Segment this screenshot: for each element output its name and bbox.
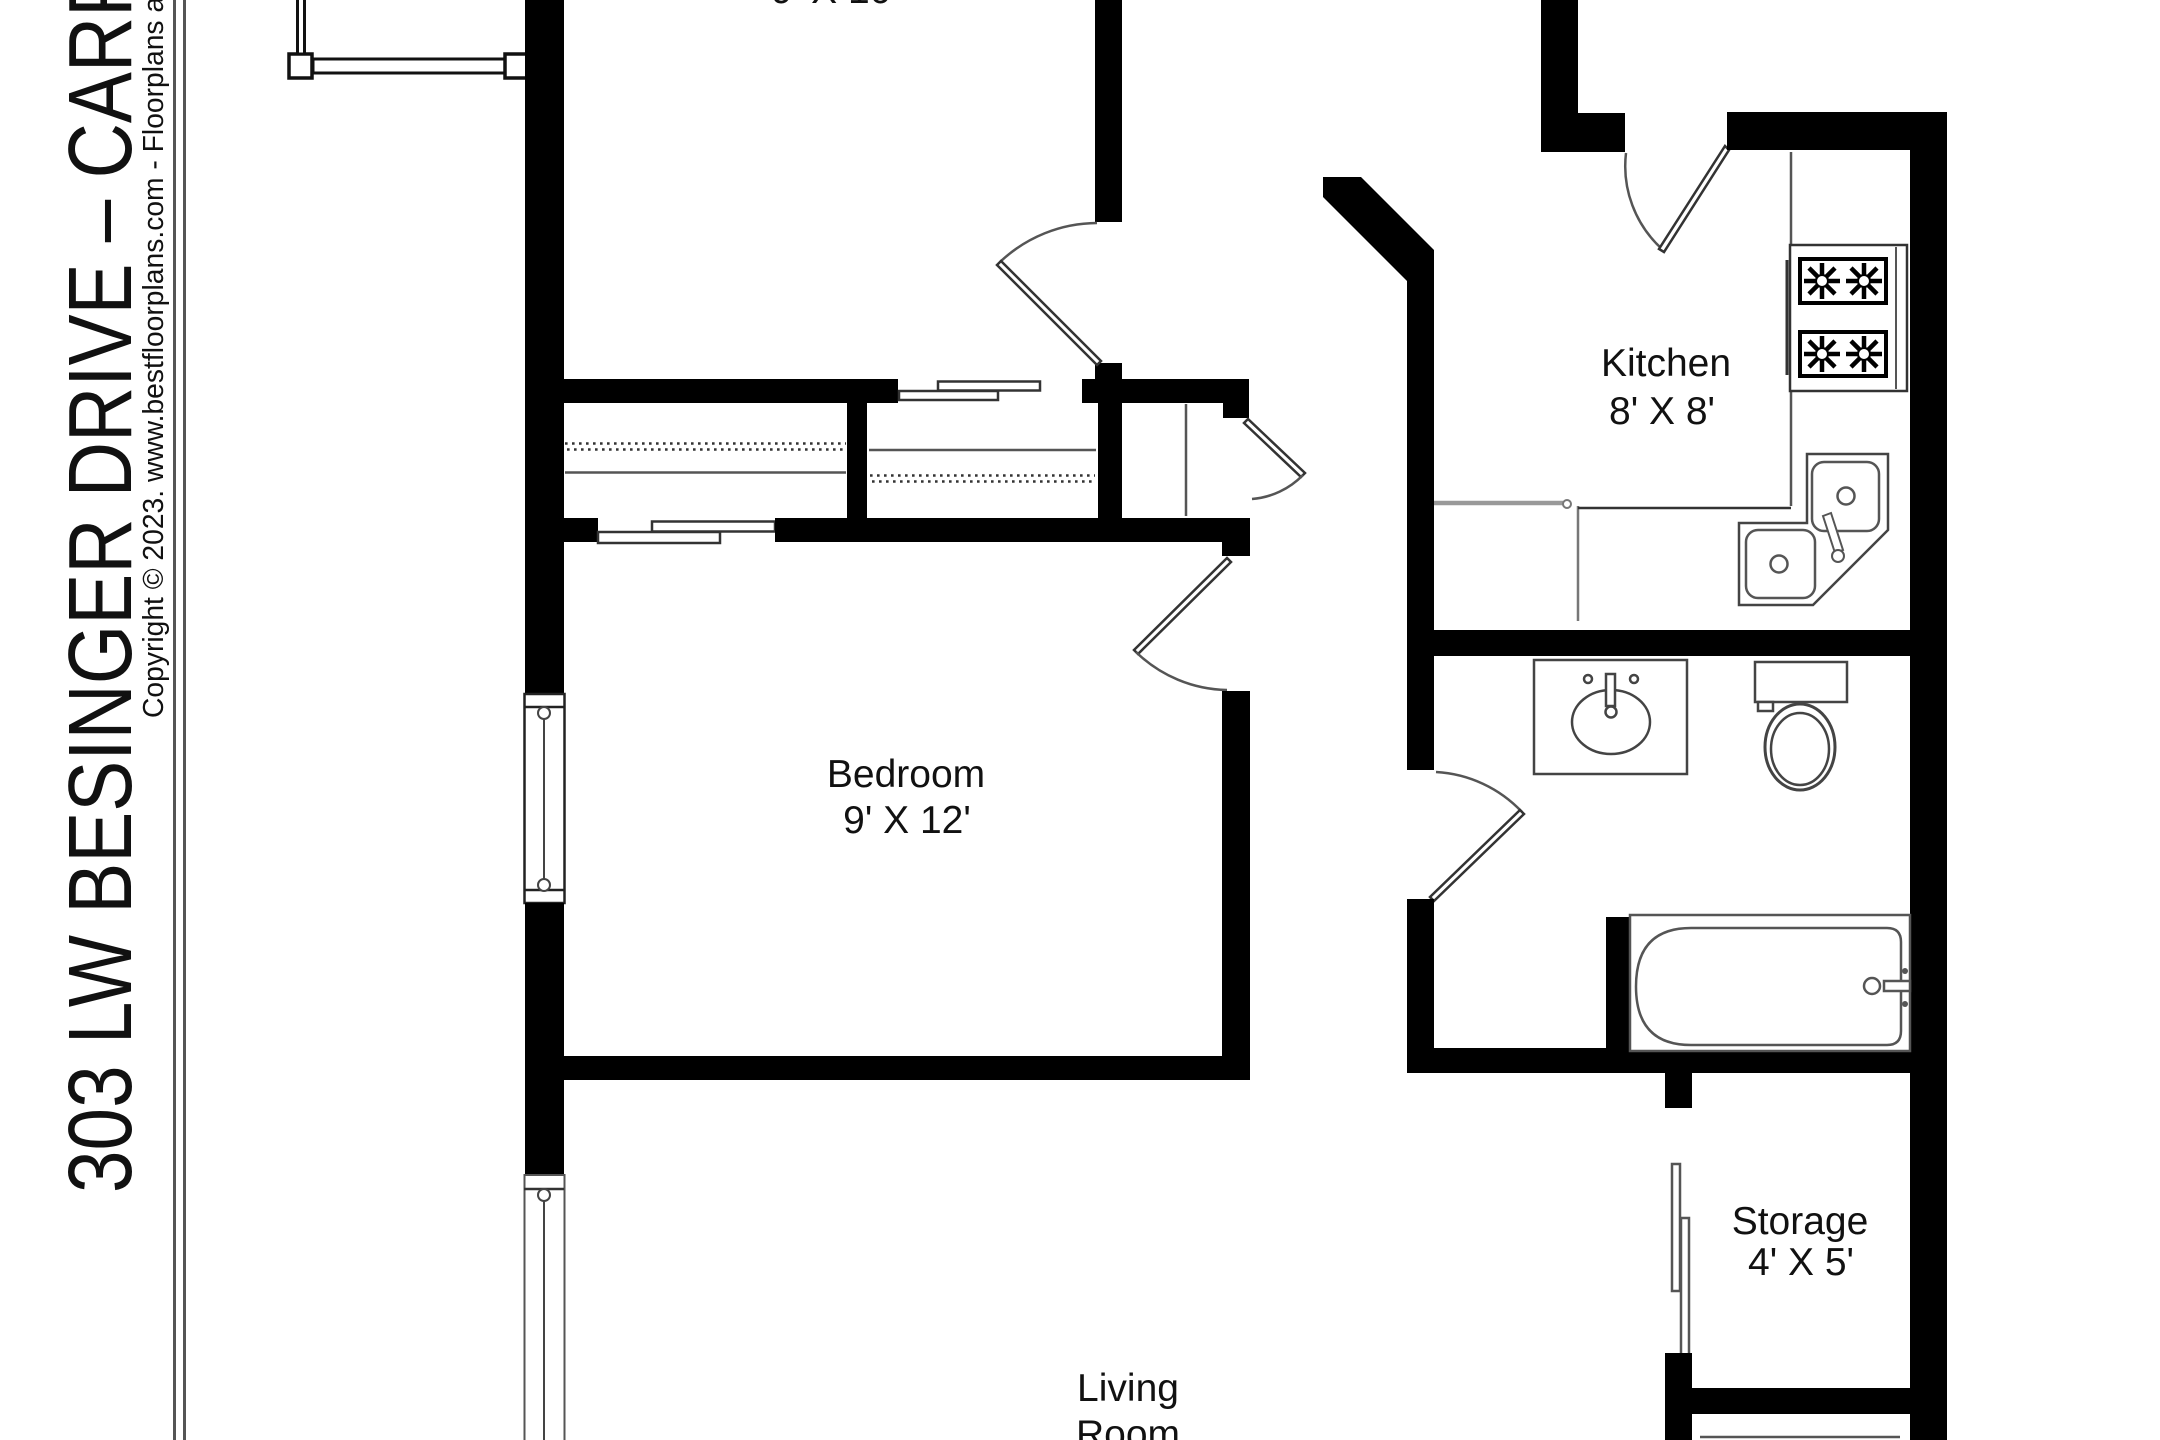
svg-text:Bedroom: Bedroom [827, 753, 985, 796]
svg-text:Copyright © 2023. www.bestfloo: Copyright © 2023. www.bestfloorplans.com… [137, 0, 169, 718]
svg-text:9' X 10': 9' X 10' [771, 0, 899, 12]
svg-text:8' X 8': 8' X 8' [1609, 390, 1715, 433]
svg-text:9' X 12': 9' X 12' [843, 799, 971, 842]
svg-text:Kitchen: Kitchen [1601, 342, 1731, 385]
svg-text:303 LW BESINGER DRIVE – CARPOR: 303 LW BESINGER DRIVE – CARPORT [49, 0, 150, 1193]
svg-text:Storage: Storage [1732, 1200, 1869, 1243]
svg-text:4' X 5': 4' X 5' [1748, 1241, 1854, 1284]
svg-text:Living: Living [1077, 1367, 1179, 1410]
svg-text:Room: Room [1076, 1413, 1180, 1440]
